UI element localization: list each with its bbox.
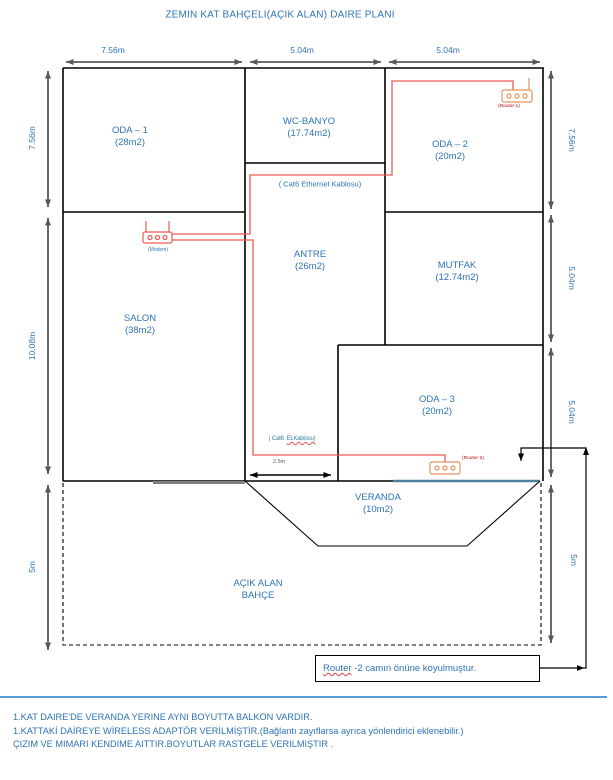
dim-right-3: 5.04m: [567, 400, 577, 424]
router2-note-box: Router -2 camın önüne koyulmuştur.: [315, 655, 540, 682]
footer-notes: 1.KAT DAIRE'DE VERANDA YERINE AYNI BOYUT…: [13, 711, 609, 752]
cable-to-router2: [172, 240, 445, 462]
dim-left-2: 10.08m: [27, 332, 37, 360]
cat6-label-bottom: ( Cat6 Et.Kablosu): [269, 436, 316, 442]
dim-cable-run: 2.5m: [273, 459, 285, 465]
cat6-label-top: ( Cat6 Ethernet Kablosu): [279, 180, 362, 189]
footer-line-1: 1.KAT DAIRE'DE VERANDA YERINE AYNI BOYUT…: [13, 711, 609, 725]
router2-icon: [430, 462, 460, 474]
dim-right-2: 5.04m: [567, 266, 577, 290]
dim-right-4: 5m: [569, 554, 579, 566]
modem-icon: [143, 221, 172, 243]
footer-line-3: ÇIZIM VE MIMARI KENDIME AITTIR.BOYUTLAR …: [13, 738, 609, 752]
room-label-bahce: AÇIK ALAN BAHÇE: [233, 578, 282, 602]
router2-label: (Router-2): [462, 456, 484, 461]
dim-left-3: 5m: [27, 561, 37, 573]
dim-right-1: 7.56m: [567, 128, 577, 152]
room-label-oda1: ODA – 1 (28m2): [112, 125, 148, 149]
room-label-mutfak: MUTFAK (12.74m2): [435, 260, 478, 284]
room-label-oda3: ODA – 3 (20m2): [419, 394, 455, 418]
garden-boundary: [63, 483, 541, 645]
dim-top-2: 5.04m: [290, 45, 314, 55]
room-label-salon: SALON (38m2): [124, 313, 156, 337]
room-label-wc-banyo: WC-BANYO (17.74m2): [283, 116, 335, 140]
modem-label: (Modem): [148, 247, 168, 253]
dim-top-3: 5.04m: [436, 45, 460, 55]
room-label-antre: ANTRE (26m2): [294, 249, 326, 273]
page-title: ZEMIN KAT BAHÇELI(AÇIK ALAN) DAIRE PLANI: [165, 10, 394, 21]
dim-top-1: 7.56m: [101, 45, 125, 55]
note-rest: -2 camın önüne koyulmuştur.: [352, 663, 477, 674]
room-label-veranda: VERANDA (10m2): [355, 492, 401, 516]
dim-left-1: 7.56m: [27, 126, 37, 150]
footer-line-2: 1.KATTAKİ DAİREYE WİRELESS ADAPTÖR VERİL…: [13, 725, 609, 739]
router1-label: (Router-1): [498, 104, 520, 109]
floor-plan-page: ZEMIN KAT BAHÇELI(AÇIK ALAN) DAIRE PLANI…: [0, 0, 613, 780]
note-word-router: Router: [323, 663, 352, 674]
room-label-oda2: ODA – 2 (20m2): [432, 139, 468, 163]
